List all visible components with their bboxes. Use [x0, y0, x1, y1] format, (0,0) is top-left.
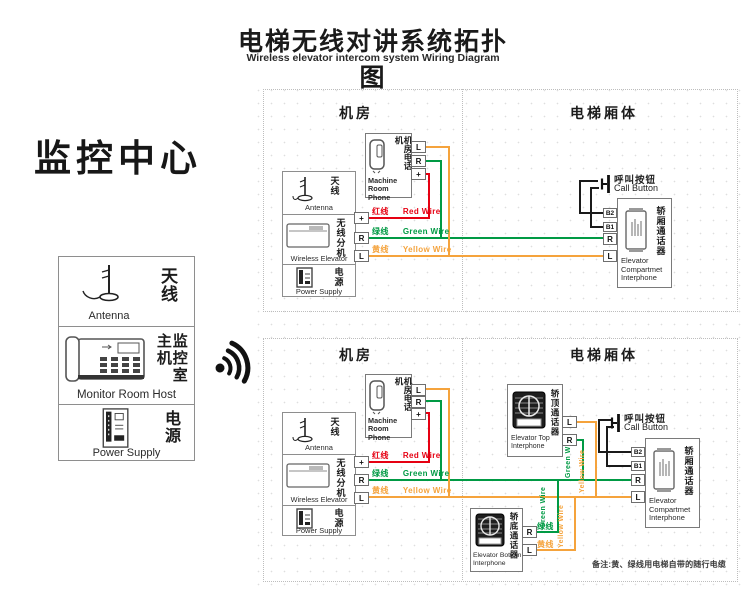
wire: [598, 419, 600, 453]
group1-divider: [462, 89, 463, 310]
monitor-host-label-zh: 监控室主机: [155, 333, 187, 387]
elevator-bottom-interphone-box: 轿底通话器 Elevator Bottom Interphone: [470, 508, 523, 572]
wire: [448, 389, 450, 498]
wire: [369, 217, 429, 219]
page-subtitle: Wireless elevator intercom system Wiring…: [218, 52, 528, 64]
wireless-extension-cell: 无线分机 Wireless Elevator: [283, 215, 355, 265]
wire: [595, 421, 597, 498]
machine-room-phone-label-en: Machine Room Phone: [368, 417, 410, 442]
antenna-icon: [75, 263, 131, 307]
footnote: 备注:黄、绿线用电梯自带的随行电缆: [592, 559, 742, 570]
terminal-l: L: [354, 250, 369, 262]
compartment-interphone-label-zh: 轿厢通话器: [655, 206, 665, 258]
yellow-wire-label: 黄线Yellow Wire: [372, 244, 452, 255]
compartment-interphone-label-zh: 轿厢通话器: [683, 446, 693, 498]
call-button-icon: [598, 174, 612, 194]
wire: [590, 187, 592, 228]
wire: [580, 180, 598, 182]
group2-elevator-car-heading: 电梯厢体: [568, 345, 640, 365]
yellow-wire-vertical-label: Yellow Wire: [558, 505, 566, 548]
power-supply-label-zh: 电源: [333, 267, 343, 289]
wire: [369, 255, 607, 257]
speaker-interphone-icon: [512, 391, 546, 431]
monitor-power-cell: 电源 Power Supply: [59, 405, 194, 462]
group2-machine-room-heading: 机房: [326, 345, 386, 365]
elevator-top-interphone-box: 轿顶通话器 Elevator Top Interphone: [507, 384, 563, 457]
wall-phone-icon: [369, 139, 386, 174]
antenna-icon: [291, 175, 319, 205]
wire: [369, 496, 631, 498]
terminal-plus: +: [354, 456, 369, 468]
top-interphone-label-en: Elevator Top Interphone: [511, 435, 561, 451]
group1-elevator-car-heading: 电梯厢体: [568, 103, 640, 123]
wireless-extension-icon: [286, 463, 330, 489]
power-supply-cell: 电源 Power Supply: [283, 506, 355, 537]
wire: [607, 465, 631, 467]
monitor-center-heading: 监控中心: [34, 128, 202, 182]
green-wire-label: 绿线Green Wire: [372, 226, 449, 237]
terminal-l: L: [411, 141, 426, 153]
monitor-host-cell: 监控室主机 Monitor Room Host: [59, 327, 194, 405]
call-button-label-en: Call Button: [614, 183, 658, 193]
antenna-label-en: Antenna: [283, 204, 355, 213]
compartment-interphone-label-en: Elevator Compartmet Interphone: [621, 257, 670, 283]
compartment-interphone-icon: [622, 206, 650, 254]
antenna-label-zh: 天线: [329, 417, 339, 441]
terminal-r: R: [354, 474, 369, 486]
top-interphone-label-zh: 轿顶通话器: [550, 389, 559, 441]
compartment-interphone-icon: [650, 446, 678, 494]
compartment-interphone-box: 轿厢通话器 Elevator Compartmet Interphone: [645, 438, 700, 528]
monitor-antenna-label-en: Antenna: [59, 310, 159, 323]
power-supply-label-en: Power Supply: [283, 527, 355, 536]
terminal-l: L: [354, 492, 369, 504]
wireless-extension-icon: [286, 223, 330, 249]
terminal-b2: B2: [631, 447, 645, 457]
wiring-diagram-canvas: 电梯无线对讲系统拓扑图 Wireless elevator intercom s…: [0, 0, 750, 589]
green-wire-label: 绿线Green Wire: [372, 468, 449, 479]
wire: [425, 400, 442, 402]
antenna-cell: 天线 Antenna: [283, 172, 355, 215]
wire: [599, 451, 631, 453]
antenna-label-zh: 天线: [329, 176, 339, 200]
yellow-wire-label: 黄线Yellow Wire: [372, 485, 452, 496]
antenna-icon: [291, 416, 319, 446]
wire: [448, 147, 450, 257]
machine-room-phone-box: 机房电话机 Machine Room Phone: [365, 374, 412, 438]
terminal-r: R: [603, 233, 617, 245]
power-supply-cell: 电源 Power Supply: [283, 265, 355, 298]
group2-divider: [462, 338, 463, 580]
wall-phone-icon: [369, 380, 386, 415]
terminal-b2: B2: [603, 208, 617, 218]
terminal-r: R: [522, 526, 537, 538]
wire: [576, 421, 597, 423]
wire: [591, 226, 603, 228]
wire: [425, 146, 450, 148]
monitor-antenna-cell: 天线 Antenna: [59, 257, 194, 327]
terminal-plus: +: [354, 212, 369, 224]
monitor-antenna-label-zh: 天线: [158, 267, 176, 311]
wireless-extension-label-en: Wireless Elevator: [283, 496, 355, 504]
compartment-interphone-box: 轿厢通话器 Elevator Compartmet Interphone: [617, 198, 672, 288]
wire: [579, 180, 581, 214]
machine-room-phone-box: 机房电话机 Machine Room Phone: [365, 133, 412, 198]
terminal-l: L: [603, 250, 617, 262]
terminal-plus: +: [411, 168, 426, 180]
monitor-host-label-en: Monitor Room Host: [59, 389, 194, 402]
terminal-l: L: [522, 544, 537, 556]
call-button-icon: [608, 413, 622, 433]
machine-room-phone-label-zh: 机房电话机: [394, 136, 412, 178]
yellow-wire-vertical-label: Yellow Wire: [579, 450, 587, 493]
terminal-r: R: [411, 155, 426, 167]
antenna-label-en: Antenna: [283, 444, 355, 453]
green-wire-short-label: 绿线: [537, 521, 554, 532]
power-supply-icon: [101, 408, 131, 448]
power-supply-icon: [296, 267, 313, 288]
wire: [369, 237, 607, 239]
terminal-l: L: [411, 384, 426, 396]
wireless-extension-label-en: Wireless Elevator: [283, 255, 355, 263]
wire: [574, 496, 576, 551]
monitor-center-box: 天线 Antenna 监控室主机 Monitor Room Host: [58, 256, 195, 461]
power-supply-label-en: Power Supply: [283, 288, 355, 297]
terminal-r: R: [354, 232, 369, 244]
rf-signal-icon: [210, 338, 256, 388]
terminal-b1: B1: [603, 222, 617, 232]
bottom-interphone-label-en: Elevator Bottom Interphone: [473, 552, 523, 568]
monitor-power-label-en: Power Supply: [59, 447, 194, 460]
terminal-r: R: [411, 396, 426, 408]
terminal-b1: B1: [631, 461, 645, 471]
machine-room-phone-label-zh: 机房电话机: [394, 377, 412, 419]
red-wire-label: 红线Red Wire: [372, 206, 441, 217]
call-button-label-en: Call Button: [624, 422, 668, 432]
speaker-interphone-icon: [475, 513, 505, 549]
wire: [425, 160, 442, 162]
wireless-unit-box: 天线 Antenna 无线分机 Wireless Elevator 电源 Pow…: [282, 412, 356, 536]
terminal-r: R: [631, 474, 645, 486]
terminal-r: R: [562, 434, 577, 446]
group1-machine-room-heading: 机房: [326, 103, 386, 123]
desk-phone-icon: [64, 333, 152, 385]
compartment-interphone-label-en: Elevator Compartmet Interphone: [649, 497, 698, 523]
wire: [425, 388, 450, 390]
wire: [369, 479, 631, 481]
antenna-cell: 天线 Antenna: [283, 413, 355, 455]
yellow-wire-short-label: 黄线: [537, 539, 554, 550]
red-wire-label: 红线Red Wire: [372, 450, 441, 461]
terminal-plus: +: [411, 408, 426, 420]
wireless-unit-box: 天线 Antenna 无线分机 Wireless Elevator 电源 Pow…: [282, 171, 356, 297]
machine-room-phone-label-en: Machine Room Phone: [368, 177, 410, 202]
terminal-l: L: [631, 491, 645, 503]
wireless-extension-cell: 无线分机 Wireless Elevator: [283, 455, 355, 506]
terminal-l: L: [562, 416, 577, 428]
monitor-power-label-zh: 电源: [161, 410, 178, 450]
wire: [369, 461, 429, 463]
